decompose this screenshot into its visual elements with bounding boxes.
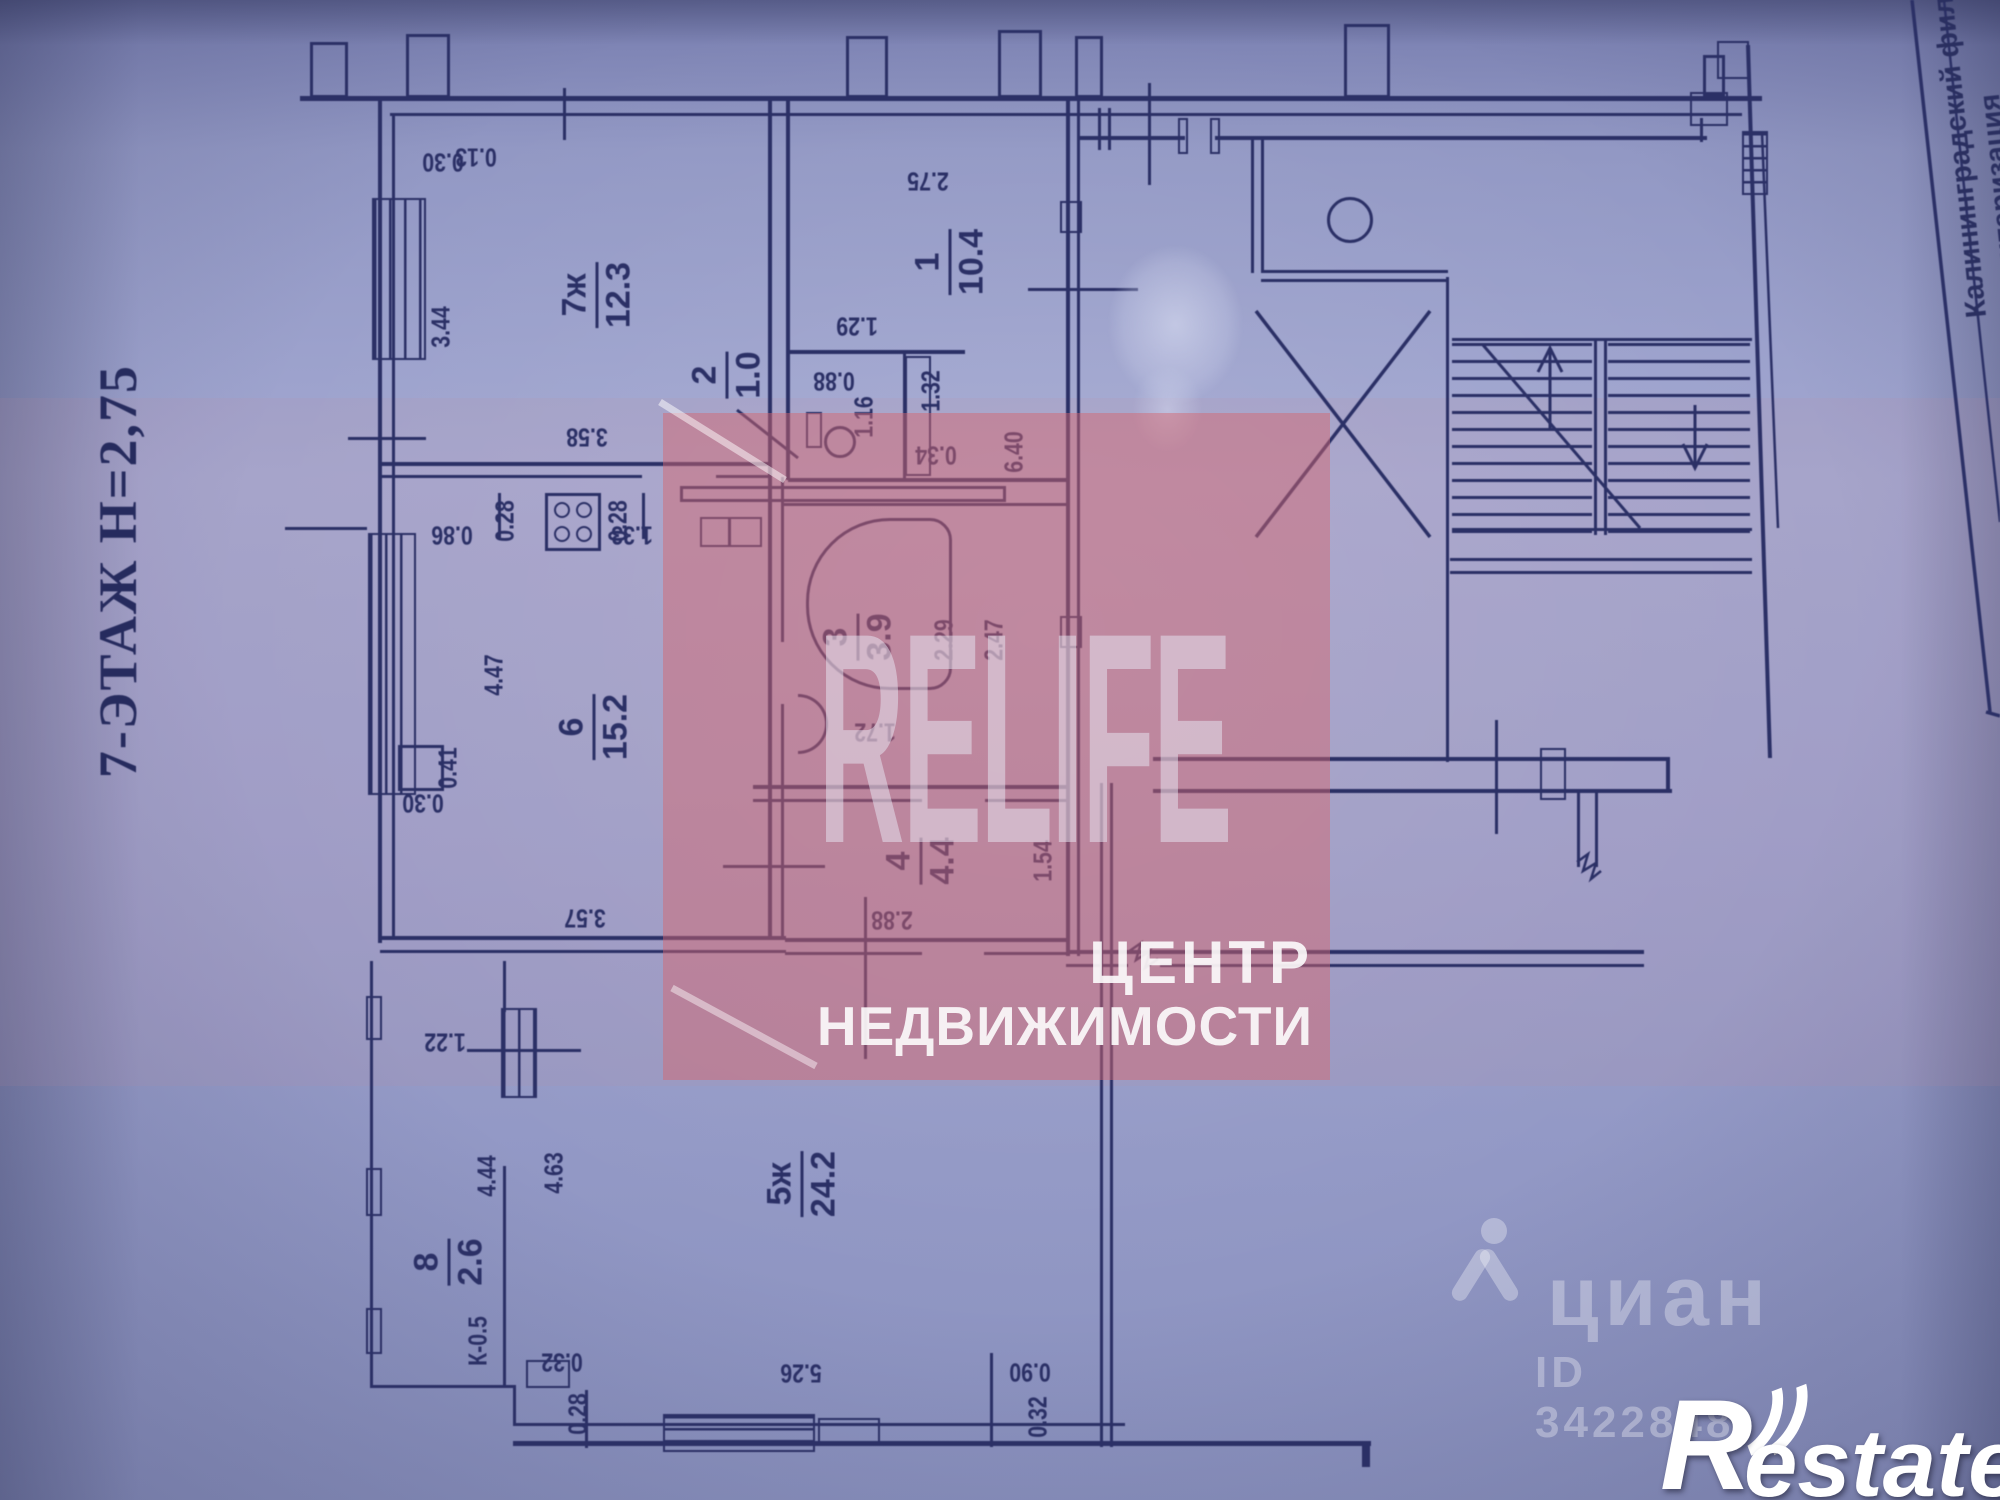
cian-pin-legs-icon [1457, 1246, 1513, 1302]
floorplan-photo: 7-ЭТАЖ Н=2,75 Калининградский филиал нта… [0, 0, 2000, 1500]
cian-pin-icon [1481, 1218, 1507, 1244]
restate-logo-r: R [1660, 1382, 1752, 1500]
cian-brand-text: циан [1547, 1248, 1772, 1345]
restate-logo: R estate [1628, 1376, 2000, 1500]
relife-center-text: ЦЕНТР [1089, 928, 1313, 997]
relife-brand-watermark: RELIFE [818, 588, 1230, 888]
restate-logo-text: estate [1744, 1416, 2000, 1500]
relife-nedvizhimost-text: НЕДВИЖИМОСТИ [817, 994, 1313, 1058]
